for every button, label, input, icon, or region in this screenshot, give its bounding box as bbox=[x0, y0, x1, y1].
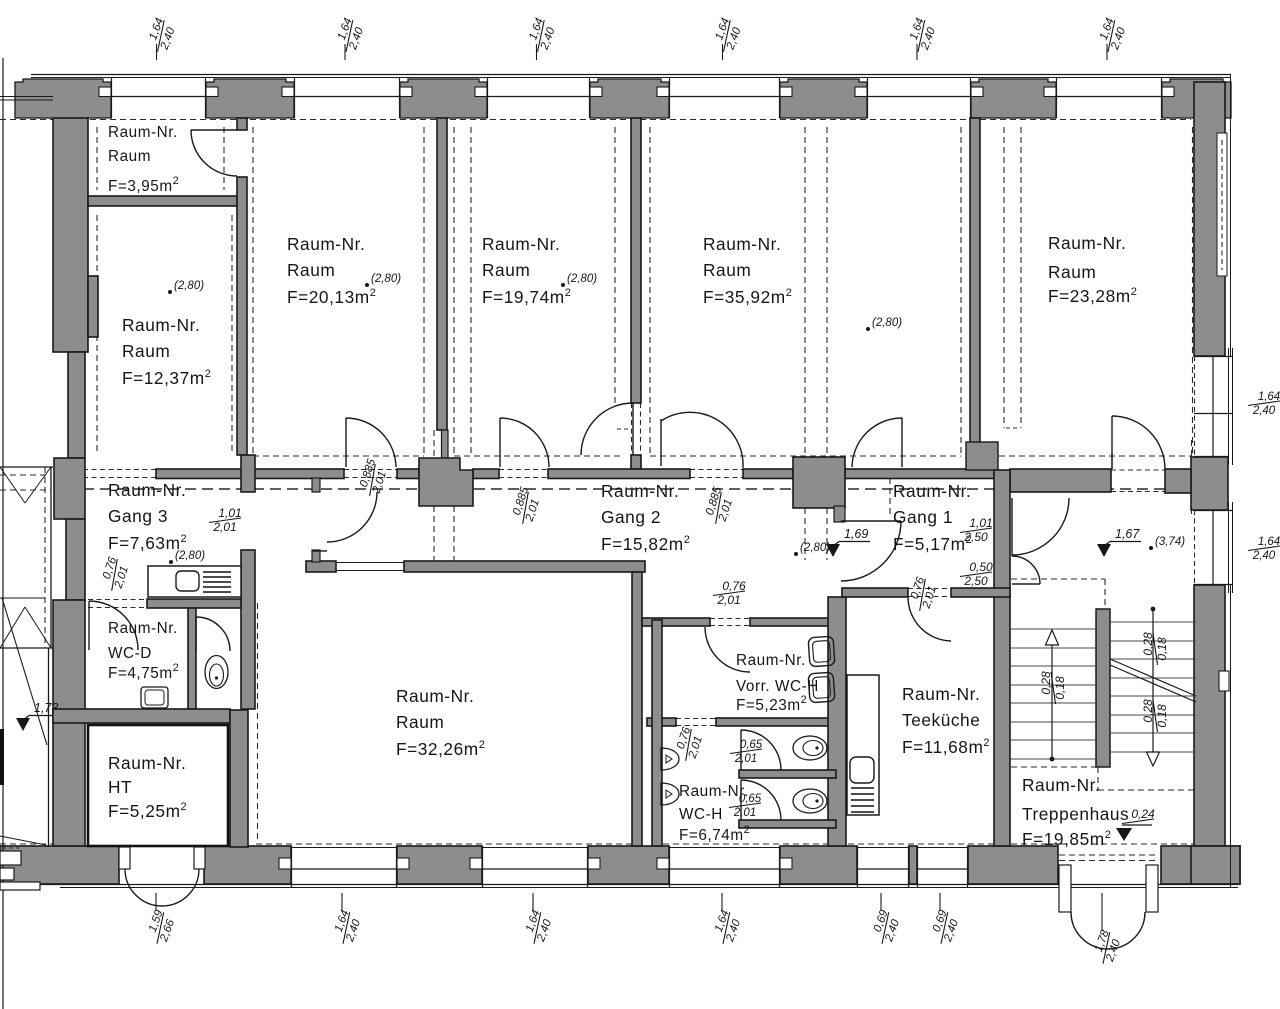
svg-text:Raum-Nr.: Raum-Nr. bbox=[108, 620, 178, 637]
svg-text:Raum-Nr.: Raum-Nr. bbox=[108, 753, 186, 773]
svg-text:Raum: Raum bbox=[108, 148, 151, 165]
svg-text:2,01: 2,01 bbox=[716, 593, 740, 607]
svg-text:Gang 2: Gang 2 bbox=[601, 507, 661, 527]
svg-text:2,01: 2,01 bbox=[734, 753, 757, 765]
svg-text:1,69: 1,69 bbox=[844, 527, 868, 541]
svg-text:WC-H: WC-H bbox=[679, 806, 723, 823]
svg-text:Raum-Nr.: Raum-Nr. bbox=[482, 234, 560, 254]
svg-text:2,01: 2,01 bbox=[212, 520, 236, 534]
svg-text:(2,80): (2,80) bbox=[175, 550, 205, 562]
svg-text:Raum: Raum bbox=[482, 260, 530, 280]
svg-text:F=32,26m2: F=32,26m2 bbox=[396, 739, 485, 759]
svg-text:F=23,28m2: F=23,28m2 bbox=[1048, 286, 1137, 306]
svg-text:Raum-Nr.: Raum-Nr. bbox=[287, 234, 365, 254]
svg-text:F=6,74m2: F=6,74m2 bbox=[679, 824, 750, 844]
svg-text:F=20,13m2: F=20,13m2 bbox=[287, 287, 376, 307]
svg-text:2,50: 2,50 bbox=[963, 574, 988, 588]
svg-text:HT: HT bbox=[108, 777, 132, 797]
svg-text:(2,80): (2,80) bbox=[371, 273, 401, 285]
svg-text:(2,80): (2,80) bbox=[872, 317, 902, 329]
svg-text:0,18: 0,18 bbox=[1155, 637, 1169, 661]
svg-text:(2,80): (2,80) bbox=[567, 273, 597, 285]
svg-text:2,40: 2,40 bbox=[1252, 550, 1276, 562]
svg-text:F=5,25m2: F=5,25m2 bbox=[108, 801, 187, 821]
svg-text:0,18: 0,18 bbox=[1053, 676, 1067, 700]
svg-text:1,67: 1,67 bbox=[1115, 527, 1140, 541]
svg-text:(3,74): (3,74) bbox=[1155, 536, 1185, 548]
svg-text:F=5,23m2: F=5,23m2 bbox=[736, 694, 807, 714]
svg-text:0,18: 0,18 bbox=[1155, 704, 1169, 728]
svg-text:Raum-Nr.: Raum-Nr. bbox=[122, 315, 200, 335]
svg-text:F=19,74m2: F=19,74m2 bbox=[482, 287, 571, 307]
svg-text:F=15,82m2: F=15,82m2 bbox=[601, 534, 690, 554]
svg-text:(2,80): (2,80) bbox=[800, 542, 830, 554]
svg-text:Raum-Nr.: Raum-Nr. bbox=[1048, 233, 1126, 253]
svg-text:WC-D: WC-D bbox=[108, 645, 152, 662]
svg-text:2,01: 2,01 bbox=[733, 807, 756, 819]
svg-text:Raum-Nr.: Raum-Nr. bbox=[703, 234, 781, 254]
svg-text:F=19,85m2: F=19,85m2 bbox=[1022, 829, 1111, 849]
svg-text:F=5,17m2: F=5,17m2 bbox=[893, 534, 972, 554]
svg-text:Gang 1: Gang 1 bbox=[893, 507, 953, 527]
svg-text:Raum-Nr.: Raum-Nr. bbox=[108, 480, 186, 500]
svg-text:Raum-Nr.: Raum-Nr. bbox=[601, 481, 679, 501]
svg-text:Raum-Nr.: Raum-Nr. bbox=[396, 686, 474, 706]
svg-text:Raum-Nr.: Raum-Nr. bbox=[736, 652, 806, 669]
svg-text:Teeküche: Teeküche bbox=[902, 710, 980, 730]
svg-text:2,50: 2,50 bbox=[963, 530, 988, 544]
svg-text:Raum-Nr.: Raum-Nr. bbox=[893, 481, 971, 501]
svg-text:Raum: Raum bbox=[1048, 262, 1096, 282]
svg-text:F=4,75m2: F=4,75m2 bbox=[108, 662, 179, 682]
svg-text:F=12,37m2: F=12,37m2 bbox=[122, 368, 211, 388]
svg-text:Raum: Raum bbox=[122, 341, 170, 361]
svg-text:Treppenhaus: Treppenhaus bbox=[1022, 804, 1129, 824]
svg-text:Raum: Raum bbox=[396, 712, 444, 732]
svg-text:Gang 3: Gang 3 bbox=[108, 506, 168, 526]
svg-text:Raum-Nr.: Raum-Nr. bbox=[1022, 775, 1100, 795]
svg-text:Vorr. WC-H: Vorr. WC-H bbox=[736, 678, 819, 695]
svg-text:Raum-Nr.: Raum-Nr. bbox=[902, 684, 980, 704]
svg-text:(2,80): (2,80) bbox=[174, 280, 204, 292]
svg-text:F=3,95m2: F=3,95m2 bbox=[108, 175, 179, 195]
svg-text:Raum: Raum bbox=[287, 260, 335, 280]
svg-text:Raum: Raum bbox=[703, 260, 751, 280]
svg-text:F=35,92m2: F=35,92m2 bbox=[703, 287, 792, 307]
svg-text:2,40: 2,40 bbox=[1252, 405, 1276, 417]
svg-text:F=11,68m2: F=11,68m2 bbox=[902, 737, 990, 757]
svg-text:Raum-Nr.: Raum-Nr. bbox=[108, 124, 178, 141]
